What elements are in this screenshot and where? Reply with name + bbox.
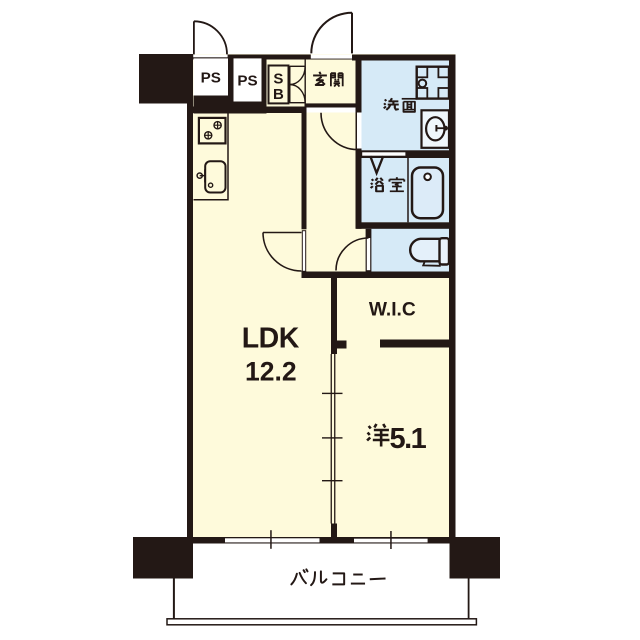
svg-text:12.2: 12.2	[245, 357, 297, 387]
svg-text:PS: PS	[237, 73, 257, 90]
svg-text:B: B	[273, 86, 284, 103]
svg-text:S: S	[273, 71, 283, 88]
svg-text:5.1: 5.1	[390, 423, 427, 455]
svg-text:PS: PS	[201, 70, 221, 87]
svg-text:W.I.C: W.I.C	[369, 300, 416, 321]
svg-text:LDK: LDK	[242, 323, 300, 355]
